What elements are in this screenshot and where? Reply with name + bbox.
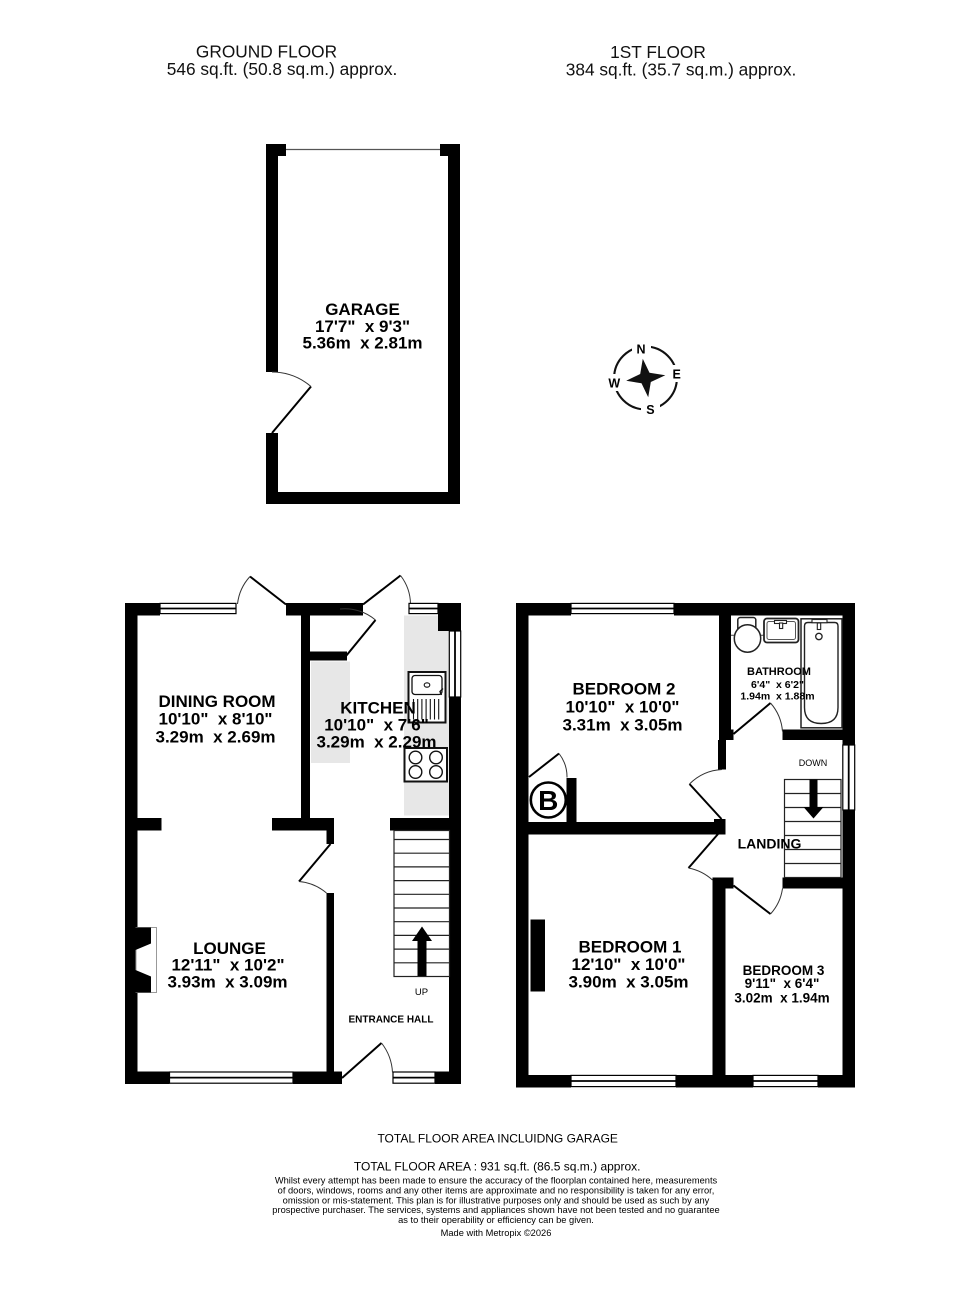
svg-text:3.31m x 3.05m: 3.31m x 3.05m [562,716,682,735]
svg-text:1.94m x 1.88m: 1.94m x 1.88m [740,691,814,703]
svg-text:ENTRANCE HALL: ENTRANCE HALL [349,1015,434,1026]
svg-text:3.29m x 2.69m: 3.29m x 2.69m [155,728,275,747]
svg-text:BEDROOM 2: BEDROOM 2 [573,680,676,699]
svg-text:3.90m x 3.05m: 3.90m x 3.05m [568,973,688,992]
svg-text:3.02m x 1.94m: 3.02m x 1.94m [734,991,829,1006]
svg-text:Made with Metropix ©2026: Made with Metropix ©2026 [441,1228,552,1238]
svg-text:S: S [646,403,654,417]
svg-text:as to their operability or eff: as to their operability or efficiency ca… [398,1215,594,1225]
svg-text:W: W [608,376,620,390]
svg-text:UP: UP [415,987,428,998]
svg-text:of doors, windows, rooms and a: of doors, windows, rooms and any other i… [278,1185,715,1195]
svg-text:5.36m x 2.81m: 5.36m x 2.81m [302,334,422,353]
svg-text:DINING ROOM: DINING ROOM [158,692,275,711]
svg-text:B: B [538,785,558,816]
svg-text:omission or mis-statement. Thi: omission or mis-statement. This plan is … [283,1195,710,1205]
svg-text:DOWN: DOWN [799,758,828,768]
svg-text:9'11" x 6'4": 9'11" x 6'4" [745,976,820,991]
svg-text:3.29m x 2.29m: 3.29m x 2.29m [316,733,436,752]
svg-text:Whilst every attempt has been: Whilst every attempt has been made to en… [275,1176,718,1186]
svg-text:prospective purchaser. The ser: prospective purchaser. The services, sys… [272,1205,719,1215]
svg-text:546 sq.ft. (50.8 sq.m.) approx: 546 sq.ft. (50.8 sq.m.) approx. [167,59,398,79]
svg-text:6'4" x 6'2": 6'4" x 6'2" [751,679,804,691]
svg-text:3.93m x 3.09m: 3.93m x 3.09m [167,973,287,992]
svg-text:BEDROOM 1: BEDROOM 1 [579,938,682,957]
svg-text:LANDING: LANDING [738,836,802,852]
svg-text:TOTAL FLOOR AREA INCLUIDNG GAR: TOTAL FLOOR AREA INCLUIDNG GARAGE [377,1132,618,1146]
svg-text:384 sq.ft. (35.7 sq.m.) approx: 384 sq.ft. (35.7 sq.m.) approx. [566,60,797,80]
svg-text:E: E [673,368,681,382]
svg-text:BATHROOM: BATHROOM [747,666,811,678]
svg-text:12'10" x 10'0": 12'10" x 10'0" [571,955,685,974]
svg-text:TOTAL FLOOR AREA : 931 sq.ft.: TOTAL FLOOR AREA : 931 sq.ft. (86.5 sq.m… [354,1160,641,1174]
svg-text:10'10" x 10'0": 10'10" x 10'0" [565,698,679,717]
svg-text:10'10" x 8'10": 10'10" x 8'10" [158,710,272,729]
svg-text:N: N [636,343,645,357]
